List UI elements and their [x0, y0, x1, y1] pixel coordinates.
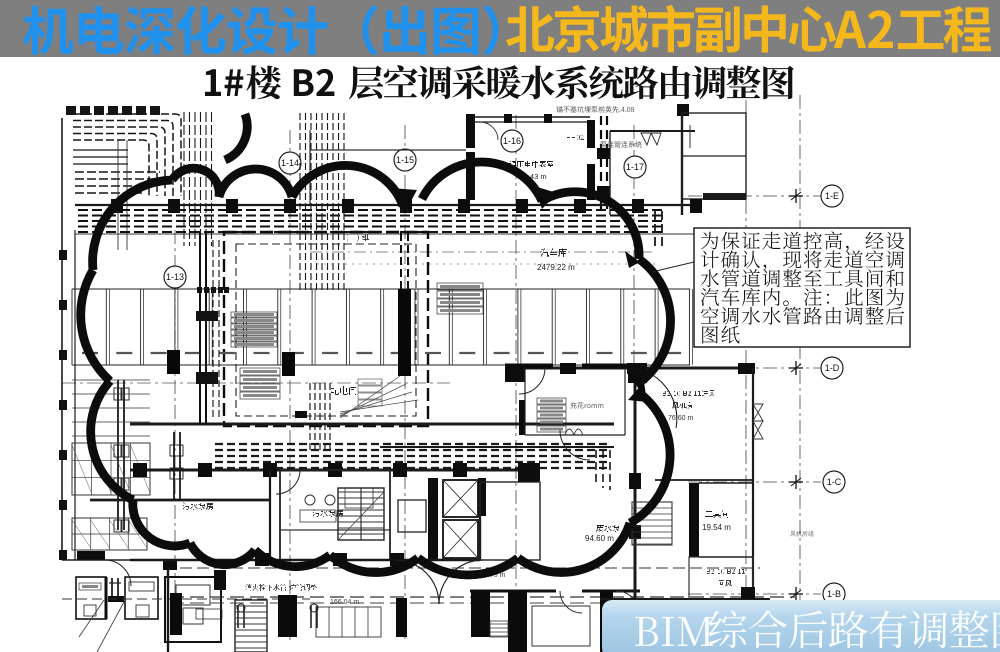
svg-text:1-17: 1-17 [626, 162, 644, 172]
svg-text:1-16: 1-16 [503, 136, 521, 146]
svg-text:1-13: 1-13 [166, 272, 184, 282]
svg-text:1-E: 1-E [825, 191, 839, 201]
svg-text:1-C: 1-C [827, 477, 842, 487]
svg-text:94.60 m: 94.60 m [585, 534, 614, 543]
svg-text:1-15: 1-15 [396, 155, 414, 165]
svg-text:76.60 m: 76.60 m [668, 415, 693, 422]
svg-text:1-14: 1-14 [281, 158, 299, 168]
svg-text:166.04 m: 166.04 m [330, 599, 359, 606]
svg-text:19.54 m: 19.54 m [702, 523, 731, 532]
svg-text:1-B: 1-B [827, 589, 841, 599]
svg-text:1-D: 1-D [825, 363, 840, 373]
